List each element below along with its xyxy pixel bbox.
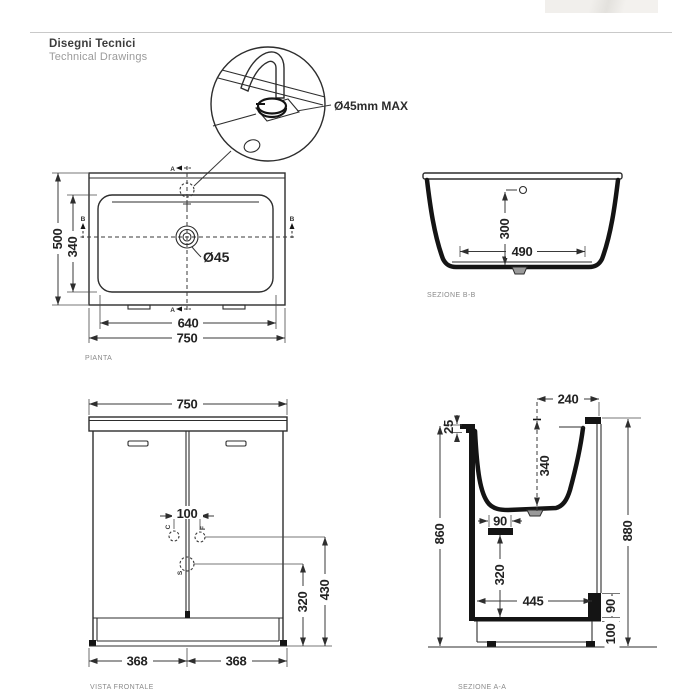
letter-f-label: F xyxy=(200,526,207,530)
drain-section xyxy=(512,267,527,274)
front-tap-height-dim: 430 xyxy=(317,580,332,601)
foot-left xyxy=(89,640,96,646)
faucet-max-diameter-callout: Ø45mm MAX xyxy=(334,99,408,113)
back-bottom-block xyxy=(588,593,601,618)
front-door-right-dim: 368 xyxy=(226,654,247,669)
aa-rim-dim: 25 xyxy=(441,420,456,434)
aa-front-height-dim: 860 xyxy=(432,524,447,545)
section-aa-label: SEZIONE A-A xyxy=(458,684,506,691)
section-a-marker-top: A xyxy=(170,166,175,173)
cold-water-hole xyxy=(195,532,205,542)
plan-view-label: PIANTA xyxy=(85,355,112,362)
plan-view: Ø45 A A B B 500 340 xyxy=(50,166,296,363)
section-b-marker-left: B xyxy=(81,216,86,223)
basin-section-aa xyxy=(475,428,583,510)
section-aa-view: 240 25 340 90 320 xyxy=(428,392,657,692)
section-bb-label: SEZIONE B-B xyxy=(427,292,476,299)
door-handle-right xyxy=(226,441,246,446)
aa-top-depth-dim: 240 xyxy=(558,392,579,407)
back-rim-block xyxy=(585,417,601,424)
hot-water-hole xyxy=(169,531,179,541)
door-handle-left xyxy=(128,441,148,446)
bottom-bar xyxy=(474,617,601,622)
foot-right xyxy=(280,640,287,646)
plan-width-outer-dim: 750 xyxy=(177,331,198,346)
bb-depth-dim: 300 xyxy=(497,219,512,240)
aa-bracket-drop-dim: 320 xyxy=(492,565,507,586)
detail-leader-line xyxy=(194,151,231,186)
section-bb-view: 300 490 SEZIONE B-B xyxy=(423,173,622,299)
front-panel-section xyxy=(469,424,475,621)
front-view-label: VISTA FRONTALE xyxy=(90,684,154,691)
technical-drawing-canvas: Ø45mm MAX Ø45 A A xyxy=(0,0,700,700)
letter-c-label: C xyxy=(165,524,172,529)
faucet-base xyxy=(258,99,286,114)
bb-width-dim: 490 xyxy=(512,244,533,259)
faucet-detail-circle: Ø45mm MAX xyxy=(194,47,408,186)
front-drain-height-dim: 320 xyxy=(295,592,310,613)
front-door-left-dim: 368 xyxy=(127,654,148,669)
front-width-top-dim: 750 xyxy=(177,397,198,412)
section-b-marker-right: B xyxy=(290,216,295,223)
siphon-bracket xyxy=(488,528,513,535)
drain-hole-front xyxy=(180,557,194,571)
plan-width-inner-dim: 640 xyxy=(178,316,199,331)
plan-depth-outer-dim: 500 xyxy=(50,229,65,250)
overflow-hole-section xyxy=(520,187,527,194)
technical-drawing-page: Disegni Tecnici Technical Drawings Ø45mm… xyxy=(0,0,700,700)
overflow-hole xyxy=(243,138,262,154)
basin-outline-plan xyxy=(98,195,273,292)
aa-plinth-height-dim: 100 xyxy=(603,624,618,645)
plan-hole-diameter-label: Ø45 xyxy=(203,249,230,265)
faucet-spout xyxy=(241,52,284,98)
aa-back-height-dim: 880 xyxy=(620,521,635,542)
aa-bottom-depth-dim: 445 xyxy=(523,594,544,609)
countertop-front xyxy=(89,417,287,431)
section-a-marker-bottom: A xyxy=(170,307,175,314)
plan-depth-inner-dim: 340 xyxy=(65,237,80,258)
front-holes-spacing-dim: 100 xyxy=(177,506,198,521)
aa-basin-depth-dim: 340 xyxy=(537,456,552,477)
aa-bracket-width-dim: 90 xyxy=(493,514,507,529)
aa-block-height-dim: 90 xyxy=(603,599,618,613)
front-view: C F S 100 430 320 750 xyxy=(89,397,333,692)
letter-s-label: S xyxy=(177,570,184,575)
